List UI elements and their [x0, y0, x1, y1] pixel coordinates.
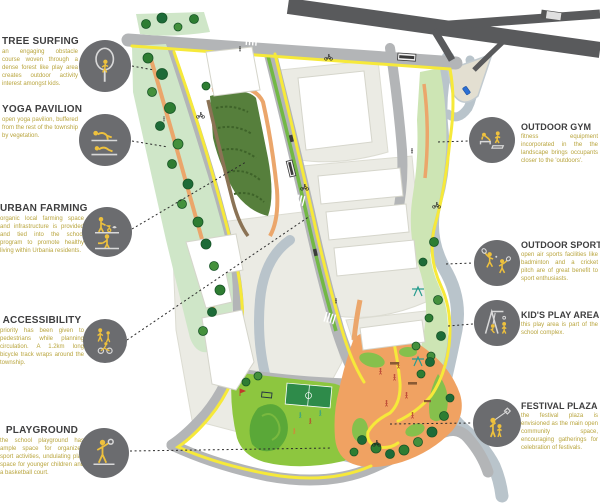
- feature-tree-surfing: TREE SURFING an engaging obstacle course…: [2, 36, 78, 89]
- feature-description: the festival plaza is envisioned as the …: [521, 413, 598, 453]
- feature-title: PLAYGROUND: [0, 425, 84, 436]
- outdoor-gym-icon: [469, 117, 515, 163]
- feature-title: KID'S PLAY AREA: [521, 310, 598, 320]
- feature-title: URBAN FARMING: [0, 203, 84, 214]
- feature-description: fitness equipment incorporated in the th…: [521, 134, 598, 166]
- feature-title: YOGA PAVILION: [2, 104, 78, 115]
- feature-title: FESTIVAL PLAZA: [521, 401, 598, 411]
- kids-play-area-icon: [474, 300, 520, 346]
- feature-festival-plaza: FESTIVAL PLAZA the festival plaza is env…: [521, 401, 598, 453]
- connector-outdoor-sport: [446, 263, 473, 264]
- accessibility-icon: [83, 319, 127, 363]
- feature-accessibility: ACCESSIBILITY priority has been given to…: [0, 315, 84, 368]
- feature-title: OUTDOOR SPORT: [521, 240, 598, 250]
- masterplan-poster: TREE SURFING an engaging obstacle course…: [0, 0, 600, 504]
- feature-outdoor-gym: OUTDOOR GYM fitness equipment incorporat…: [521, 122, 598, 166]
- festival-plaza-icon: [473, 399, 521, 447]
- bus: [398, 53, 416, 61]
- feature-description: priority has been given to pedestrians w…: [0, 328, 84, 368]
- urban-farming-icon: [82, 207, 132, 257]
- feature-description: an engaging obstacle course woven throug…: [2, 49, 78, 89]
- feature-title: TREE SURFING: [2, 36, 78, 47]
- playground-icon: [79, 428, 129, 478]
- feature-description: open yoga pavilion, buffered from the re…: [2, 117, 78, 141]
- feature-outdoor-sport: OUTDOOR SPORT open air sports facilities…: [521, 240, 598, 284]
- feature-playground: PLAYGROUND the school playground has amp…: [0, 425, 84, 478]
- feature-description: the school playground has ample space fo…: [0, 438, 84, 478]
- yoga-pavilion-icon: [79, 114, 131, 166]
- basketball-court: [285, 383, 332, 408]
- feature-title: ACCESSIBILITY: [0, 315, 84, 326]
- tree-surfing-icon: [79, 40, 131, 92]
- feature-yoga-pavilion: YOGA PAVILION open yoga pavilion, buffer…: [2, 104, 78, 141]
- feature-title: OUTDOOR GYM: [521, 122, 598, 132]
- feature-description: open air sports facilities like badminto…: [521, 252, 598, 284]
- feature-description: this play area is part of the school com…: [521, 322, 598, 338]
- feature-urban-farming: URBAN FARMING organic local farming spac…: [0, 203, 84, 256]
- outdoor-sport-icon: [474, 240, 520, 286]
- feature-description: organic local farming space and infrastr…: [0, 216, 84, 256]
- feature-kids-play-area: KID'S PLAY AREA this play area is part o…: [521, 310, 598, 338]
